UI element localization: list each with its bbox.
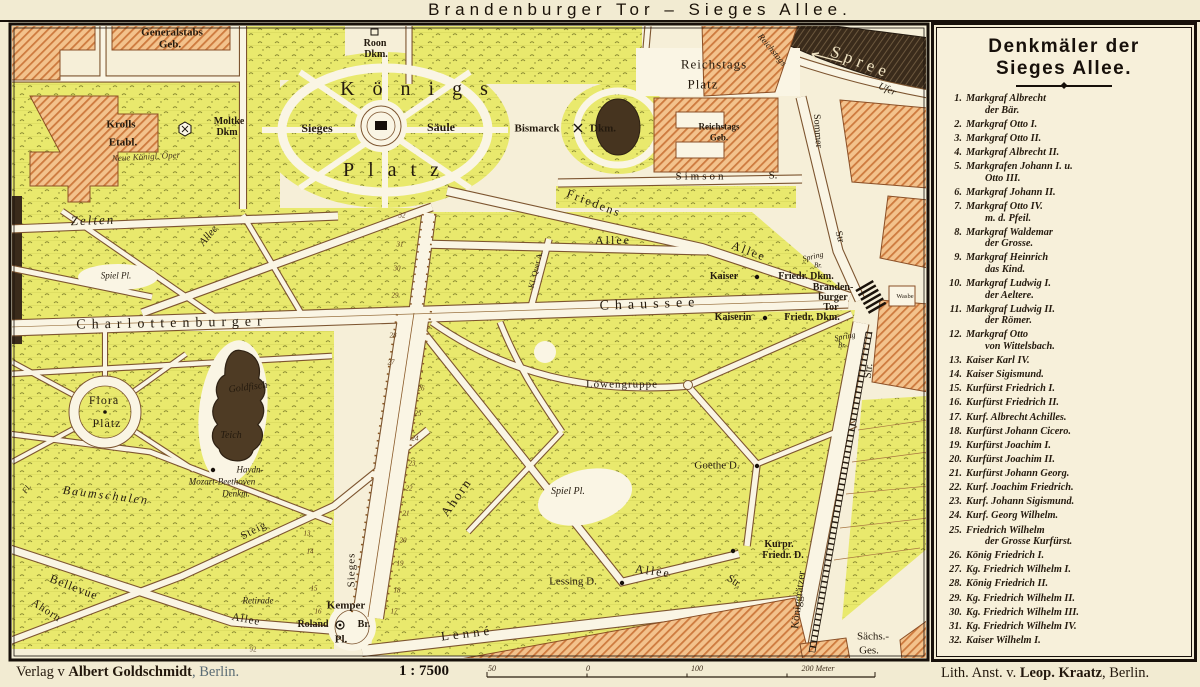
monument-number: 18 (394, 588, 401, 595)
map-label: Platz (93, 417, 122, 429)
scale-tick-label: 100 (691, 664, 703, 673)
legend-item: 5.Markgrafen Johann I. u.Otto III. (945, 161, 1183, 184)
legend-item: 18.Kurfürst Johann Cicero. (945, 426, 1183, 438)
goethe-monument-dot (755, 464, 759, 468)
map-label: Dkm. (364, 50, 388, 60)
legend-item: 11.Markgraf Ludwig II.der Römer. (945, 304, 1183, 327)
map-label: Wasbe (896, 294, 913, 301)
title-rule (0, 20, 1200, 22)
map-label: Löwengruppe (586, 380, 658, 391)
map-label: Br. (358, 620, 371, 630)
legend-item: 2.Markgraf Otto I. (945, 119, 1183, 131)
monument-number: 14 (307, 549, 314, 556)
map-label: Etabl. (109, 138, 137, 149)
map-label: Geb. (159, 40, 181, 51)
map-label: Kemper (327, 601, 365, 612)
legend-item: 32.Kaiser Wilhelm I. (945, 635, 1183, 647)
legend-item: 14.Kaiser Sigismund. (945, 369, 1183, 381)
monument-number: 17 (391, 609, 398, 616)
map-label: Retirade (243, 597, 274, 606)
map-label: Simson (675, 172, 726, 183)
scale-tick-label: 200 Meter (801, 664, 834, 673)
legend-item: 20.Kurfürst Joachim II. (945, 454, 1183, 466)
map-label: Br. (814, 263, 822, 270)
legend-item: 24.Kurf. Georg Wilhelm. (945, 510, 1183, 522)
map-label: Säule (427, 121, 455, 133)
map-label: Krolls (106, 120, 135, 131)
monument-number: 29 (392, 293, 399, 300)
map-label: Br. (838, 343, 846, 350)
map-label: Zelten (71, 213, 116, 228)
legend-item: 22.Kurf. Joachim Friedrich. (945, 482, 1183, 494)
legend-item: 19.Kurfürst Joachim I. (945, 440, 1183, 452)
legend-divider (1016, 82, 1112, 89)
map-label: Reichstags (681, 58, 747, 71)
kaiserin-friedrich-monument-dot (763, 316, 767, 320)
legend-item: 17.Kurf. Albrecht Achilles. (945, 412, 1183, 424)
haydn-mozart-beethoven-monument-dot (211, 468, 215, 472)
legend-item: 8.Markgraf Waldemarder Grosse. (945, 227, 1183, 250)
legend-item: 28.König Friedrich II. (945, 578, 1183, 590)
map-label: Dkm (216, 128, 237, 138)
pond-small (534, 341, 556, 363)
monument-number: 20 (400, 538, 407, 545)
monument-number: 31 (397, 242, 404, 249)
legend-title: Denkmäler der Sieges Allee. (945, 36, 1183, 79)
map-label: Kaiser (710, 272, 738, 282)
legend-item: 21.Kurfürst Johann Georg. (945, 468, 1183, 480)
legend-item: 15.Kurfürst Friedrich I. (945, 383, 1183, 395)
legend-item: 25.Friedrich Wilhelmder Grosse Kurfürst. (945, 525, 1183, 548)
legend-item: 31.Kg. Friedrich Wilhelm IV. (945, 621, 1183, 633)
map-label: Platz (688, 78, 719, 91)
map-label: Moltke (214, 117, 245, 127)
monument-number: 23 (409, 461, 416, 468)
legend-item: 10.Markgraf Ludwig I.der Aeltere. (945, 278, 1183, 301)
map-label: Dkm. (590, 124, 616, 135)
legend-item: 7.Markgraf Otto IV.m. d. Pfeil. (945, 201, 1183, 224)
map-label: Flora (89, 394, 119, 406)
map-label: Friedr. Dkm. (784, 313, 839, 323)
monument-number: 27 (388, 360, 395, 367)
map-label: Friedr. Dkm. (778, 272, 833, 282)
lithographer-credit: Lith. Anst. v. Leop. Kraatz, Berlin. (941, 665, 1149, 682)
map-label: Königs (340, 79, 506, 99)
legend-panel: Denkmäler der Sieges Allee. 1.Markgraf A… (936, 27, 1192, 657)
monument-number: 15 (311, 586, 318, 593)
legend-list: 1.Markgraf Albrechtder Bär.2.Markgraf Ot… (945, 93, 1183, 646)
map-label: Reichstags (699, 123, 740, 132)
map-sheet: Brandenburger Tor – Sieges Allee. Genera… (0, 0, 1200, 687)
legend-item: 6.Markgraf Johann II. (945, 187, 1183, 199)
scale-tick-label: 0 (586, 664, 590, 673)
flora-platz-circle (69, 376, 141, 448)
lessing-monument-dot (620, 581, 624, 585)
map-label: Roland (297, 620, 328, 630)
map-label: Sieges (347, 553, 358, 588)
legend-item: 26.König Friedrich I. (945, 550, 1183, 562)
monument-number: 26 (418, 386, 425, 393)
legend-item: 12.Markgraf Ottovon Wittelsbach. (945, 329, 1183, 352)
map-label: Kaiserin (715, 313, 752, 323)
map-label: Bismarck (514, 124, 559, 135)
monument-number: 13 (304, 531, 311, 538)
legend-item: 3.Markgraf Otto II. (945, 133, 1183, 145)
victory-column-icon (375, 121, 387, 130)
moltke-monument-icon (179, 122, 191, 136)
monument-number: 21 (403, 511, 410, 518)
legend-item: 13.Kaiser Karl IV. (945, 355, 1183, 367)
map-label: Lessing D. (549, 577, 597, 588)
map-label: Mozart-Beethoven (189, 478, 255, 487)
legend-item: 9.Markgraf Heinrichdas Kind. (945, 252, 1183, 275)
kurprinz-monument-dot (731, 549, 735, 553)
map-label: Pl. (335, 635, 348, 646)
map-label: Platz (343, 160, 453, 180)
map-label: Goethe D. (694, 461, 739, 472)
monument-number: 32 (399, 213, 406, 220)
monument-number: 30 (394, 266, 401, 273)
map-label: Denkm. (222, 490, 250, 499)
legend-item: 30.Kg. Friedrich Wilhelm III. (945, 607, 1183, 619)
legend-item: 23.Kurf. Johann Sigismund. (945, 496, 1183, 508)
publisher-credit: Verlag v Albert Goldschmidt, Berlin. (16, 664, 239, 681)
map-label: Teich (220, 431, 241, 441)
monument-number: 22 (406, 486, 413, 493)
monument-number: 19 (397, 561, 404, 568)
map-label: Spiel Pl. (101, 272, 132, 281)
monument-number: 28 (390, 333, 397, 340)
monument-number: 25 (415, 411, 422, 418)
map-label: Roon (364, 39, 387, 49)
page-title: Brandenburger Tor – Sieges Allee. (428, 0, 852, 20)
legend-item: 16.Kurfürst Friedrich II. (945, 397, 1183, 409)
map-label: Sommer (811, 114, 823, 149)
map-label: Sächs.- (857, 632, 889, 643)
kaiser-friedrich-monument-dot (755, 275, 759, 279)
map-label: Friedr. D. (762, 551, 804, 561)
map-label: S. (769, 171, 778, 182)
map-label: Ges. (859, 646, 879, 657)
map-label: Haydn- (237, 466, 264, 475)
legend-item: 27.Kg. Friedrich Wilhelm I. (945, 564, 1183, 576)
monument-number: 24 (412, 436, 419, 443)
map-label: Kurpr. (764, 540, 793, 550)
map-label: Allee (595, 234, 631, 246)
map-label: Str. (863, 363, 876, 379)
lion-group-icon (684, 381, 693, 390)
map-label: Str (833, 230, 846, 244)
scale-tick-label: 50 (488, 664, 496, 673)
legend-item: 29.Kg. Friedrich Wilhelm II. (945, 593, 1183, 605)
map-label: 92 (250, 647, 257, 654)
map-label: Geb. (710, 134, 728, 143)
monument-number: 16 (315, 609, 322, 616)
map-label: Spiel Pl. (551, 487, 585, 497)
map-label: Generalstabs (141, 28, 203, 39)
legend-item: 4.Markgraf Albrecht II. (945, 147, 1183, 159)
scale-ratio: 1 : 7500 (399, 663, 449, 680)
map-label: Sieges (301, 122, 332, 134)
legend-item: 1.Markgraf Albrechtder Bär. (945, 93, 1183, 116)
